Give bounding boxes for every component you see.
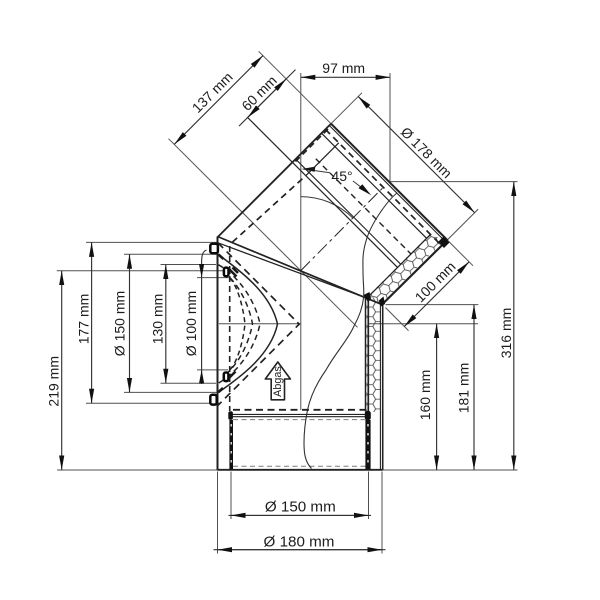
svg-text:316 mm: 316 mm bbox=[498, 308, 514, 359]
svg-text:130 mm: 130 mm bbox=[149, 294, 165, 345]
svg-text:97 mm: 97 mm bbox=[322, 60, 365, 76]
svg-text:Abgas: Abgas bbox=[272, 366, 284, 397]
svg-text:Ø 150 mm: Ø 150 mm bbox=[112, 291, 128, 356]
svg-text:Ø 180 mm: Ø 180 mm bbox=[264, 534, 335, 551]
svg-text:45°: 45° bbox=[331, 168, 352, 184]
svg-text:219 mm: 219 mm bbox=[45, 356, 61, 407]
svg-text:160 mm: 160 mm bbox=[417, 370, 433, 421]
svg-text:Ø 100 mm: Ø 100 mm bbox=[183, 291, 199, 356]
svg-text:181 mm: 181 mm bbox=[455, 363, 471, 414]
svg-text:Ø 150 mm: Ø 150 mm bbox=[265, 499, 336, 516]
svg-text:177 mm: 177 mm bbox=[75, 294, 91, 345]
